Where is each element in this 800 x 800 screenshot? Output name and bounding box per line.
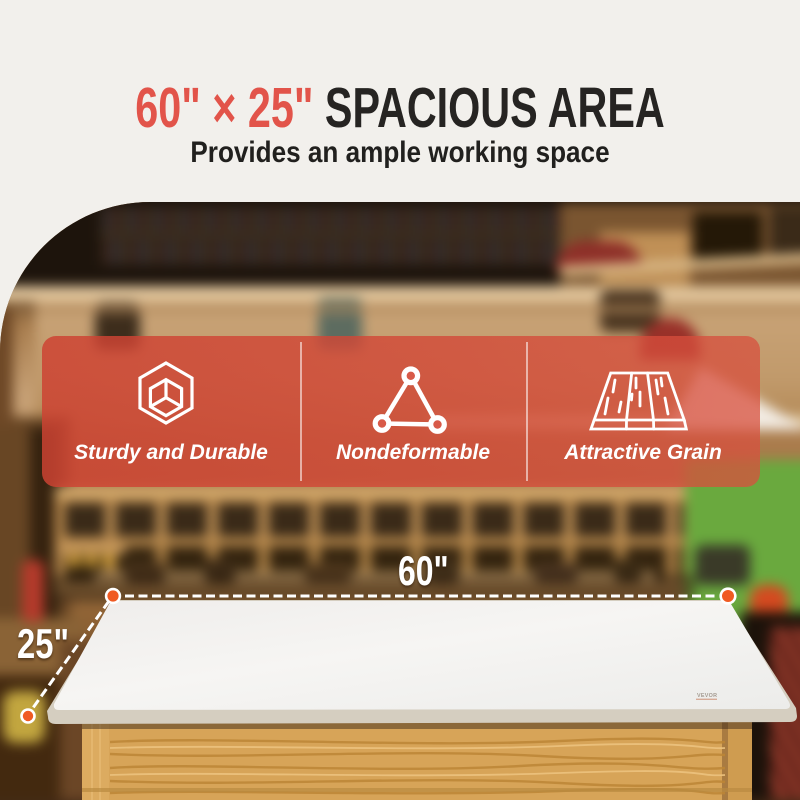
svg-text:VEVOR: VEVOR (697, 693, 717, 699)
